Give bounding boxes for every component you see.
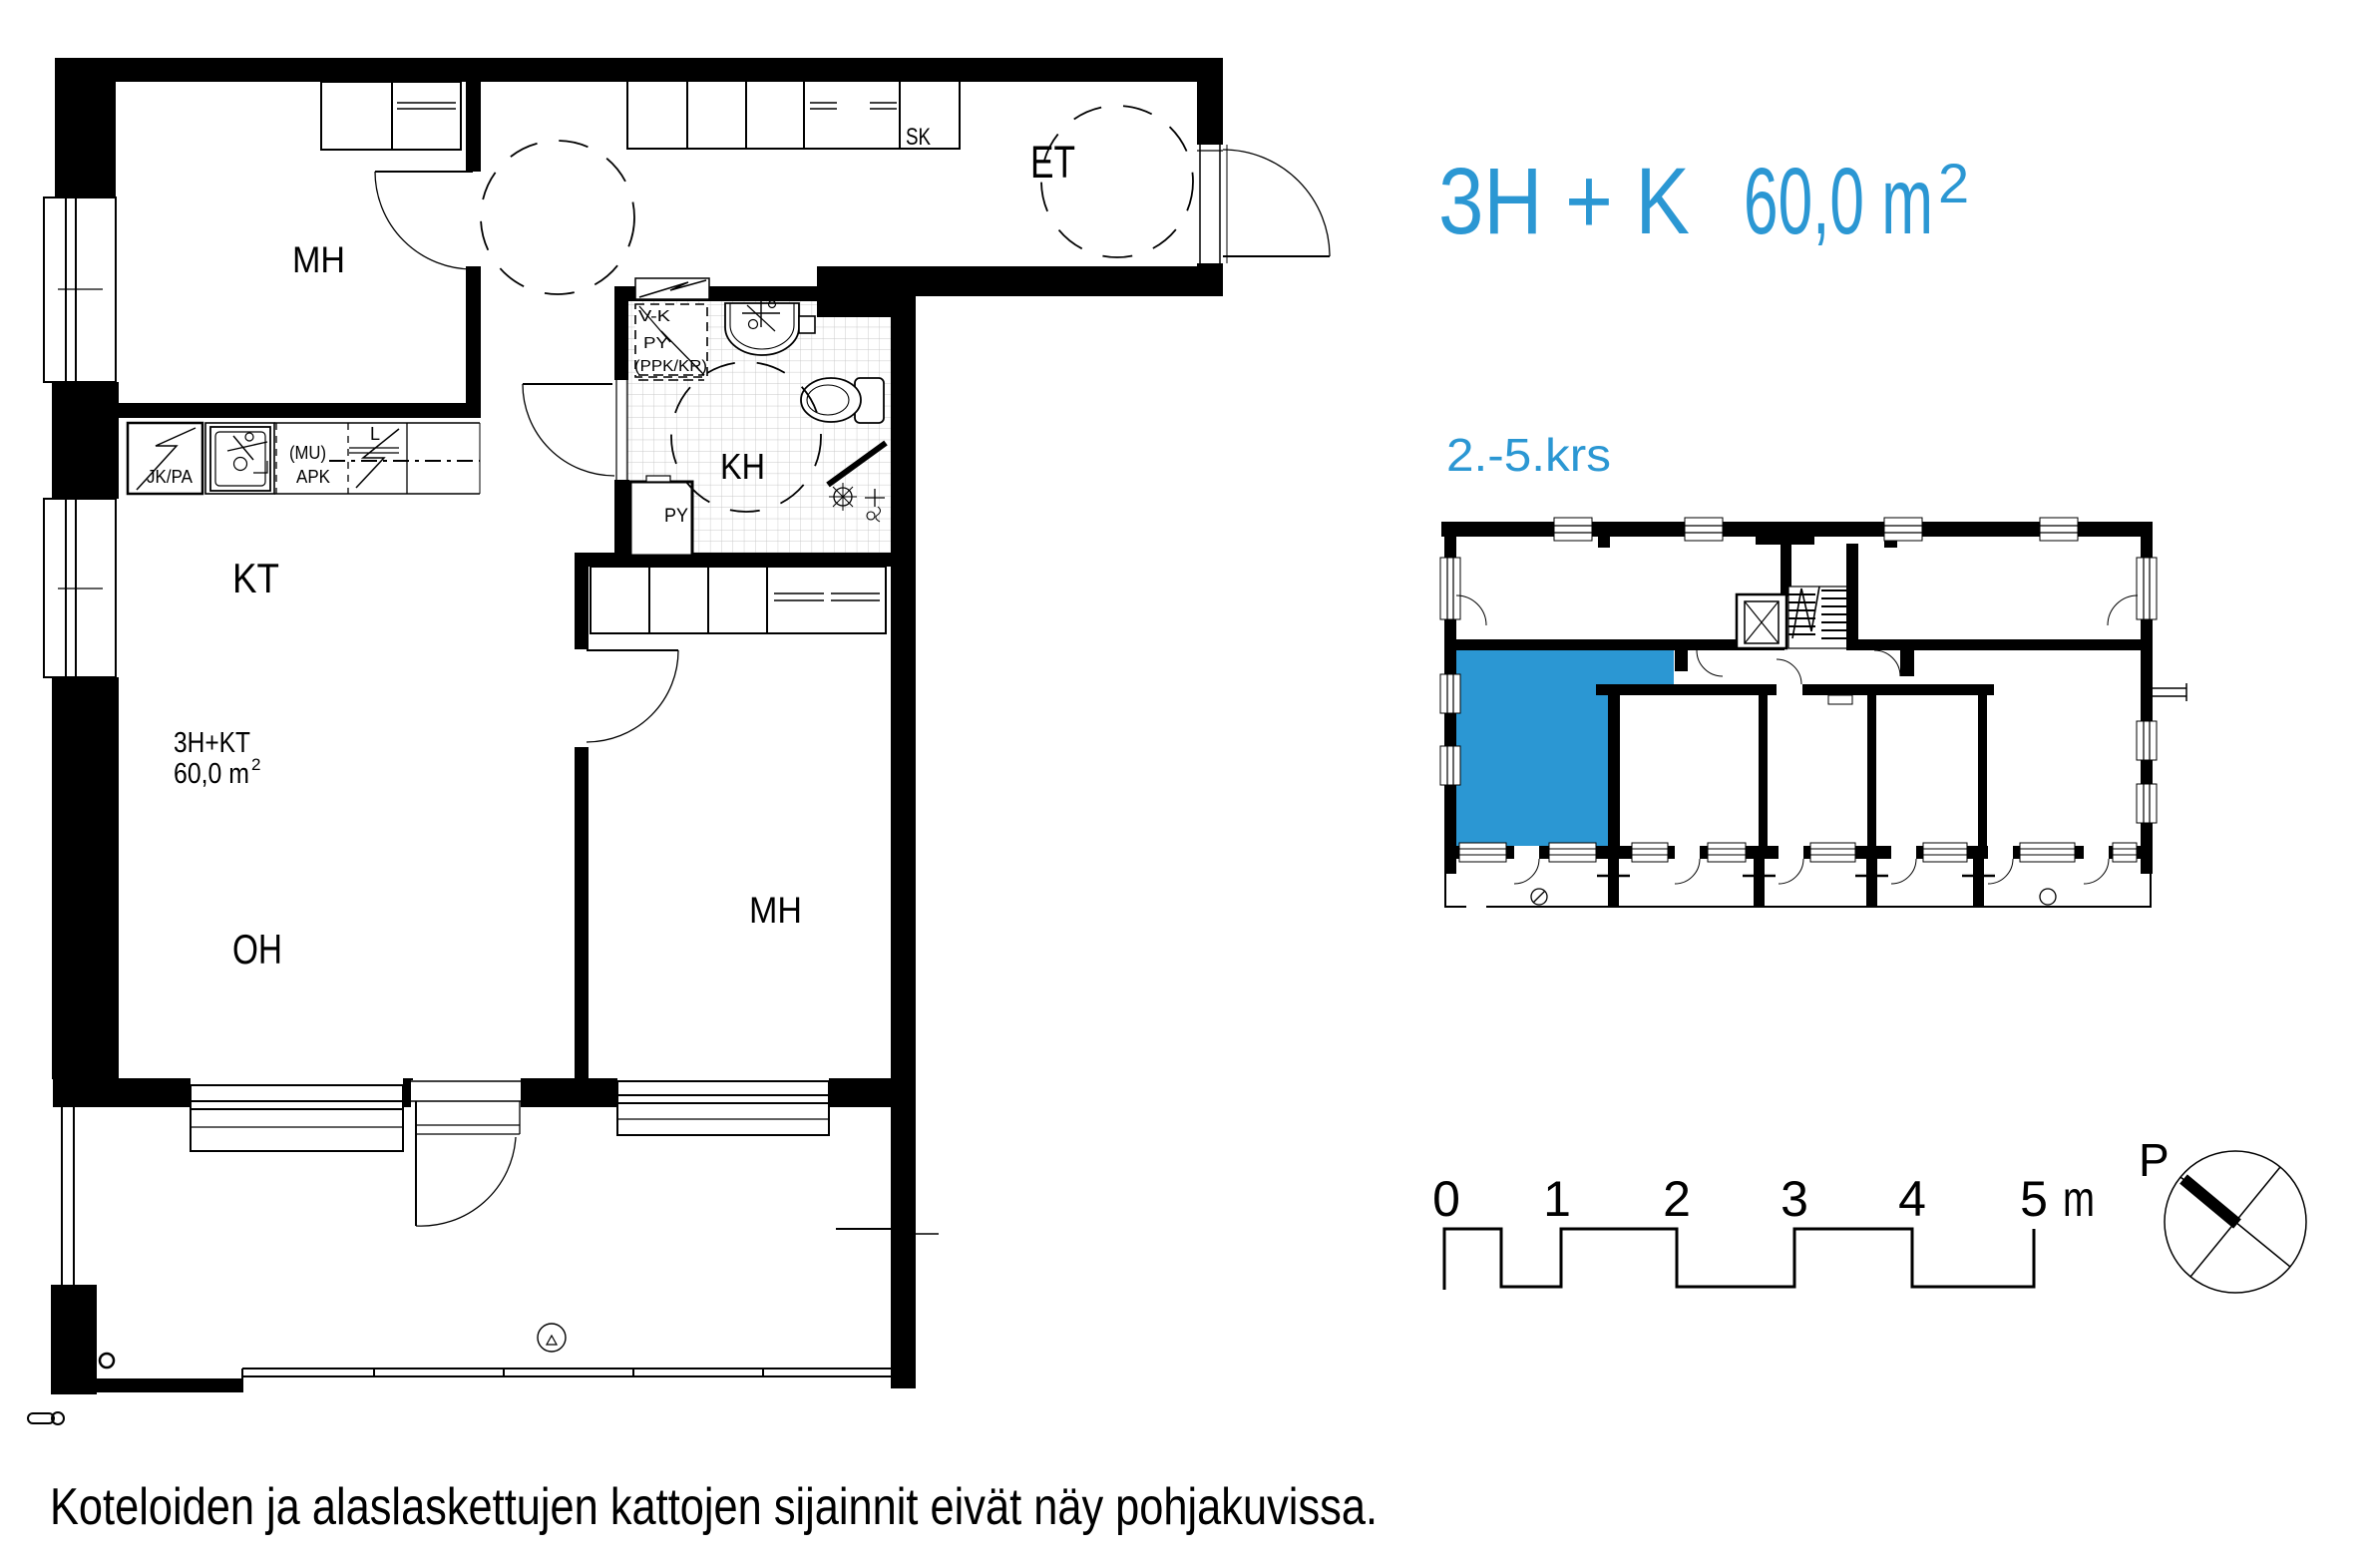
svg-text:APK: APK <box>296 467 330 487</box>
svg-text:2: 2 <box>251 755 260 774</box>
svg-text:MH: MH <box>749 890 802 931</box>
svg-text:OH: OH <box>232 926 282 973</box>
svg-text:V-K: V-K <box>638 308 670 325</box>
svg-text:P: P <box>2139 1134 2170 1186</box>
svg-text:4: 4 <box>1898 1171 1926 1227</box>
svg-text:2: 2 <box>1938 152 1969 214</box>
svg-text:(MU): (MU) <box>289 443 326 463</box>
svg-text:3: 3 <box>1781 1171 1808 1227</box>
svg-text:2: 2 <box>1663 1171 1691 1227</box>
svg-text:MH: MH <box>292 239 345 280</box>
svg-text:60,0 m: 60,0 m <box>1744 149 1933 254</box>
svg-text:L: L <box>370 424 380 444</box>
svg-text:KH: KH <box>720 446 765 487</box>
svg-text:JK/PA: JK/PA <box>147 467 193 487</box>
svg-text:5: 5 <box>2020 1171 2048 1227</box>
svg-text:Koteloiden ja alaslaskettujen: Koteloiden ja alaslaskettujen kattojen s… <box>50 1478 1378 1536</box>
svg-text:PY: PY <box>664 506 688 527</box>
svg-text:0: 0 <box>1432 1171 1460 1227</box>
svg-text:SK: SK <box>906 124 931 151</box>
svg-text:3H+KT: 3H+KT <box>174 727 250 759</box>
svg-text:1: 1 <box>1543 1171 1571 1227</box>
svg-text:ET: ET <box>1030 137 1075 188</box>
svg-text:3H + K: 3H + K <box>1438 149 1690 254</box>
svg-text:2.-5.krs: 2.-5.krs <box>1446 429 1611 481</box>
svg-text:PY: PY <box>643 335 668 352</box>
svg-text:m: m <box>2063 1171 2095 1227</box>
svg-text:60,0 m: 60,0 m <box>174 758 249 790</box>
svg-text:KT: KT <box>232 555 279 601</box>
svg-text:(PPK/KR): (PPK/KR) <box>634 358 707 375</box>
